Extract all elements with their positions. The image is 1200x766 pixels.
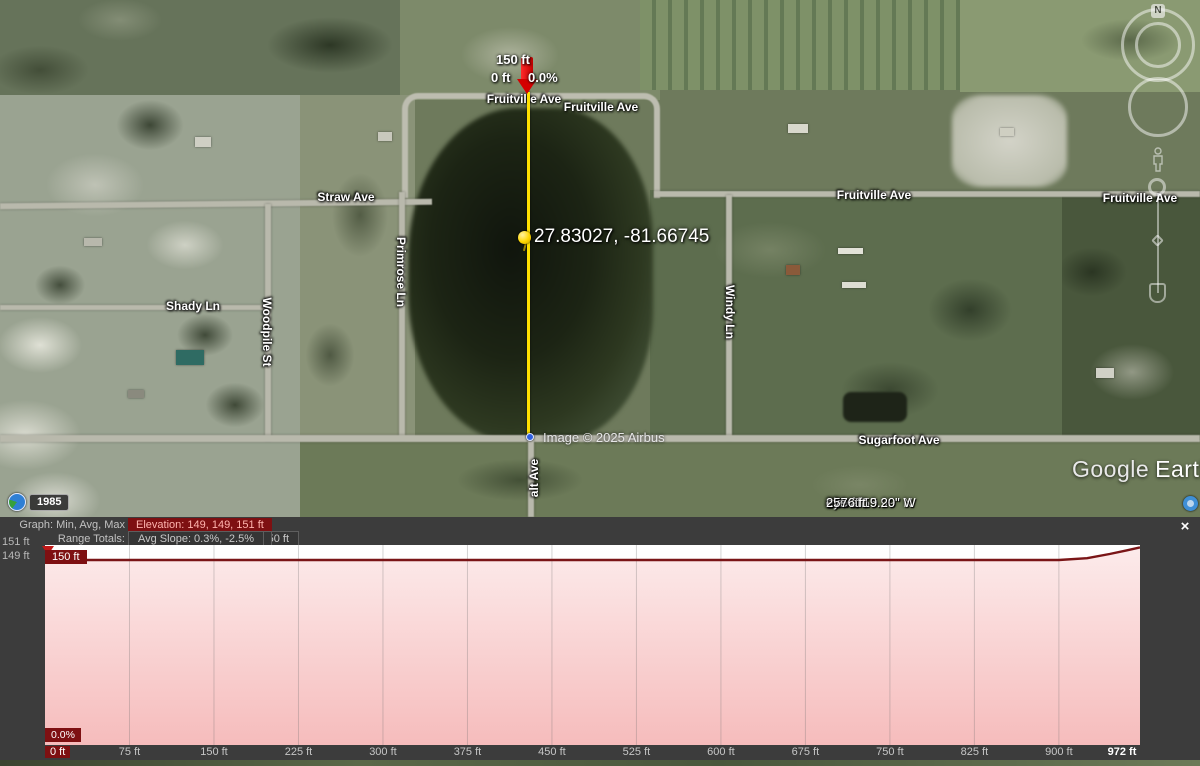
road-shady-ln [0,305,272,310]
street-label: alt Ave [527,459,541,497]
y-axis-min-label: 149 ft [2,550,42,562]
street-label: Fruitville Ave [1103,191,1177,205]
street-label: Windy Ln [723,285,737,339]
x-axis-tick-label: 675 ft [792,746,820,758]
measure-path-line[interactable] [527,92,530,436]
google-earth-window: Fruitville AveFruitville AveStraw AveFru… [0,0,1200,766]
terrain-dark-pond [843,392,907,422]
y-axis-max-label: 151 ft [2,536,42,548]
building [1096,368,1114,378]
x-axis-tick-label: 525 ft [623,746,651,758]
close-panel-button[interactable]: × [1176,518,1194,535]
building [84,238,102,246]
x-axis-tick-label: 972 ft [1108,746,1137,758]
building-trailer [838,248,863,254]
logo-earth: Earth [1155,456,1200,482]
x-axis-tick-label: 75 ft [119,746,140,758]
elevation-chart[interactable] [45,545,1140,745]
street-label: Fruitville Ave [837,188,911,202]
measure-slope-label: 0.0% [528,70,558,85]
x-axis-tick-label: 825 ft [961,746,989,758]
map-edge-sliver [0,760,1200,766]
building [1000,128,1014,136]
status-bar: 27°49'55.99" N 81°40'19.20" W elev 156 f… [826,495,1186,512]
compass-inner-ring[interactable] [1135,22,1181,68]
x-axis-tick-label: 0 ft [45,746,70,758]
measure-top-elevation-label: 150 ft [496,52,530,67]
elevation-chart-svg [45,545,1140,745]
street-label: Fruitville Ave [564,100,638,114]
street-label: Straw Ave [317,190,374,204]
chart-x-axis: 0 ft75 ft150 ft225 ft300 ft375 ft450 ft5… [0,745,1200,760]
x-axis-tick-label: 300 ft [369,746,397,758]
google-earth-logo: GoogleEarth [1072,456,1200,483]
street-label: Fruitville Ave [487,92,561,106]
x-axis-tick-label: 600 ft [707,746,735,758]
chart-cursor-slope-badge: 0.0% [45,728,81,742]
x-axis-tick-label: 450 ft [538,746,566,758]
x-axis-tick-label: 225 ft [285,746,313,758]
zoom-out-button[interactable] [1149,283,1166,303]
road-primrose-ln [399,192,405,440]
street-label: Primrose Ln [394,237,408,307]
look-joystick-ring[interactable] [1128,77,1188,137]
street-label: Sugarfoot Ave [858,433,939,447]
terrain-crop-rows [640,0,970,90]
satellite-map-view[interactable]: Fruitville AveFruitville AveStraw AveFru… [0,0,1200,517]
streaming-indicator-icon [1183,496,1198,511]
building [378,132,392,141]
street-label: Woodpile St [260,297,274,366]
x-axis-tick-label: 375 ft [454,746,482,758]
logo-google: Google [1072,456,1149,482]
chart-cursor-elevation-badge: 150 ft [45,550,87,564]
building [195,137,211,147]
x-axis-tick-label: 750 ft [876,746,904,758]
elevation-profile-panel: Graph: Min, Avg, Max Elevation: 149, 149… [0,517,1200,760]
building-trailer [842,282,866,288]
building [128,390,144,398]
elevation-minavgmax-stat: Elevation: 149, 149, 151 ft [128,518,272,532]
imagery-date-badge[interactable]: 1985 [29,494,69,511]
placemark-coordinates-label: 27.83027, -81.66745 [534,226,709,248]
compass-north-button[interactable]: N [1151,4,1165,18]
pegman-icon[interactable] [1151,147,1165,173]
imagery-copyright: Image © 2025 Airbus [543,430,665,445]
graph-legend-label: Graph: Min, Avg, Max [0,519,125,531]
building-teal-roof [176,350,204,365]
x-axis-tick-label: 900 ft [1045,746,1073,758]
measure-distance-label: 0 ft [491,70,511,85]
street-label: Shady Ln [166,299,220,313]
status-eyealt-value: 2576 ft [826,495,866,510]
building-barn [786,265,800,275]
terrain-field [0,0,420,100]
x-axis-tick-label: 150 ft [200,746,228,758]
yellow-pushpin-icon[interactable] [518,231,531,244]
terrain-sand-patch [952,95,1067,187]
building [788,124,808,133]
measure-endpoint-dot[interactable] [526,433,534,441]
historical-imagery-clock-icon[interactable] [8,493,26,511]
